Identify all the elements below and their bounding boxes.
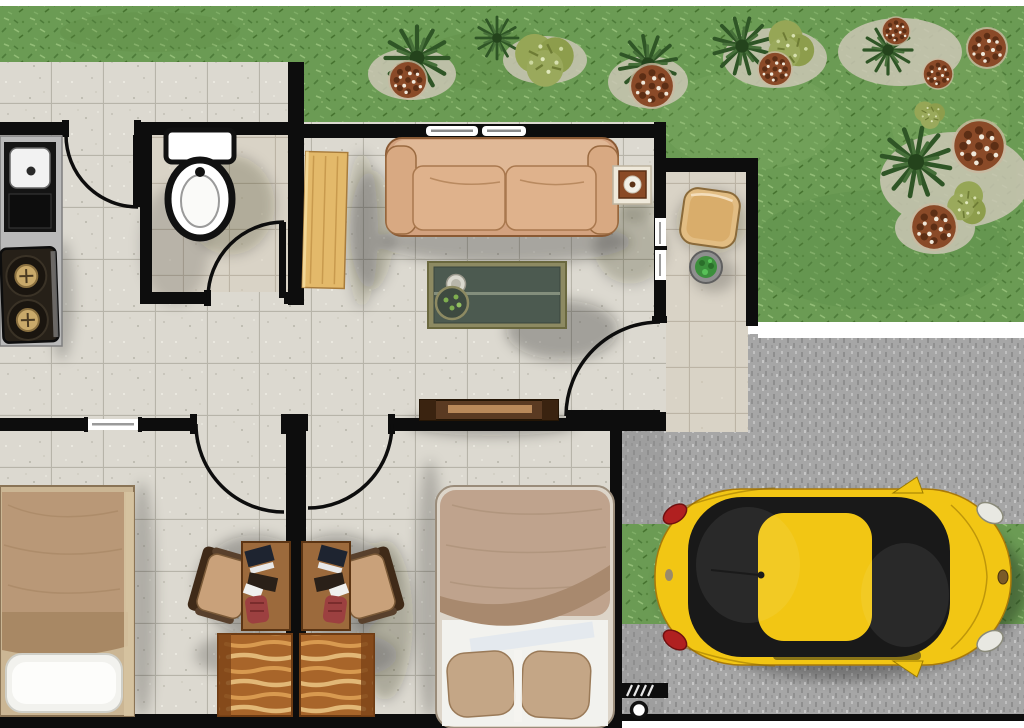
bed1-rail [124,492,134,716]
car-front-emblem [998,570,1008,584]
jamb [134,120,141,137]
wall-bathroom-south-a [140,292,208,304]
side-walkway [0,62,288,122]
sofa-cushion [506,166,596,230]
bottom-border [622,721,1024,728]
floor-plan-canvas [0,0,1024,728]
wall-north-kitchen [0,122,66,135]
flower-cluster [757,51,793,87]
flower-cluster [910,203,958,251]
toilet-seat-inner [181,175,219,227]
tray [436,287,468,319]
wall-bathroom-south-b [284,292,304,304]
bed1-fold-band [2,612,128,656]
toilet [166,130,234,238]
stove [0,247,58,343]
sofa-arm-left [386,146,416,234]
bed-double [436,486,614,728]
car [655,477,1024,680]
porch-potted-plant [690,251,722,283]
side-table [613,166,651,204]
jamb [62,120,69,137]
living-north-window [426,126,526,136]
toilet-hinge [195,167,205,177]
flower-cluster [629,63,675,109]
flower-cluster [388,60,428,100]
top-border [0,0,1024,6]
flower-cluster [881,16,910,45]
wall-north-living [296,124,666,138]
kitchen-unit [0,136,62,346]
flower-cluster [952,119,1007,174]
bed1-duvet [2,492,126,620]
wall-porch-north [660,158,758,172]
wall-porch-east [746,158,758,326]
sofa [386,138,618,236]
hall-shelf [302,151,348,288]
flower-cluster [966,27,1008,69]
wall-bathroom-west [140,122,152,304]
wall-bedroom1-north-b [142,418,196,431]
stove-burner [6,255,47,296]
yard-driveway-border [758,322,1024,338]
coffee-table [428,262,566,328]
bathroom-door-panel [279,222,286,298]
bed2-pillow-gap [514,650,522,722]
wall-bedroom1-north-a [0,418,84,431]
console-table [420,400,558,420]
gate-post [632,703,647,718]
entrance-door-panel [566,410,660,420]
stove-burner [7,299,48,340]
sofa-cushion [413,166,505,230]
sink-lower-panel [9,194,51,228]
porch-table [678,186,741,249]
bedroom1-window [84,417,142,432]
bed1-pillow-inner [12,662,116,704]
kitchen-door-panel [133,135,140,207]
wall-west-living-fence [288,62,304,305]
jamb [281,414,288,434]
bed-single [0,486,134,716]
flower-cluster [922,58,954,90]
bed2-pillow [446,650,516,718]
bed2-pillow [520,650,591,719]
driveway-bottom-line [622,714,1024,721]
car-rear-emblem [665,569,673,581]
living-east-window [654,218,667,280]
sink-drain [27,167,36,176]
